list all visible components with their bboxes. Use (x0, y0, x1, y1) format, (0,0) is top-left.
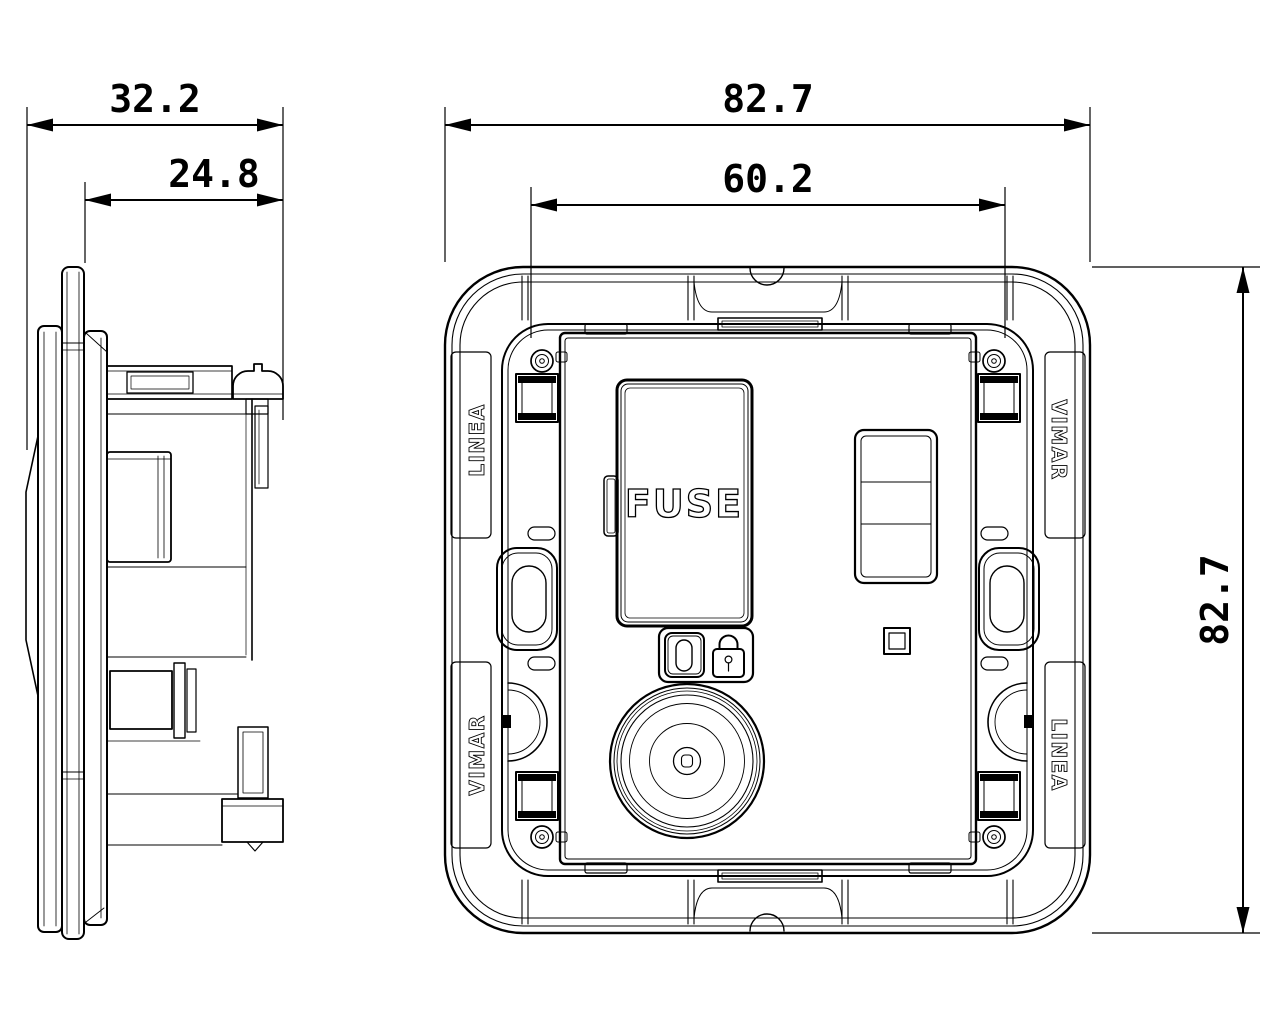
clip-window-top-right (978, 374, 1020, 422)
lock-plate (659, 628, 753, 682)
corner-screw-bottom-left (531, 826, 567, 848)
dim-value-32-2: 32.2 (109, 77, 201, 121)
side-knob-shaft (110, 671, 172, 729)
technical-drawing-page: 32.2 24.8 (0, 0, 1280, 1024)
side-view (26, 267, 283, 939)
drawing-svg: 32.2 24.8 (0, 0, 1280, 1024)
side-claw-block (222, 799, 283, 842)
dimension-front-height: 82.7 (1092, 267, 1260, 933)
engraved-vimar-bottom-left: VIMAR (465, 714, 489, 795)
key-slot (676, 640, 692, 671)
arrowhead-right (257, 194, 283, 207)
corner-screw-top-right (969, 350, 1005, 372)
side-cover-plate (38, 326, 62, 932)
engraved-linea-top-left: LINEA (465, 403, 489, 477)
arrowhead-down (1237, 907, 1250, 933)
frame-outer-edge (445, 267, 1090, 933)
padlock-icon (713, 636, 744, 678)
arrowhead-left (27, 119, 53, 132)
side-knob-bump (26, 436, 38, 696)
fuse-door: FUSE (604, 380, 752, 626)
corner-screw-bottom-right (969, 826, 1005, 848)
knob-center-slot (682, 755, 693, 767)
oval-screw-tab-right (979, 548, 1039, 650)
clip-window-bottom-left (516, 772, 558, 820)
oval-screw-tab-left (497, 548, 557, 650)
semicircle-cutout-right (988, 683, 1032, 761)
engraved-linea-bottom-right: LINEA (1047, 718, 1071, 792)
arrowhead-left (445, 119, 471, 132)
rocker-switch (855, 430, 937, 583)
dim-value-24-8: 24.8 (168, 152, 260, 196)
dimension-front-inner-width: 60.2 (531, 157, 1005, 338)
dim-value-82-7-width: 82.7 (722, 77, 814, 121)
dim-value-82-7-height: 82.7 (1193, 554, 1237, 646)
arrowhead-right (257, 119, 283, 132)
dimension-side-flush-depth: 24.8 (85, 152, 283, 263)
frame-bottom-notch (750, 914, 784, 931)
rotary-knob (610, 684, 764, 838)
engraved-vimar-top-right: VIMAR (1047, 399, 1071, 480)
engraved-fuse-label: FUSE (625, 482, 743, 526)
frame-window-edge (502, 324, 1033, 876)
clip-window-bottom-right (978, 772, 1020, 820)
side-back-plate (62, 267, 84, 939)
front-view: LINEA VIMAR VIMAR LINEA (445, 267, 1090, 933)
side-fuse-carrier (107, 452, 171, 562)
semicircle-cutout-left (503, 683, 547, 761)
corner-screw-top-left (531, 350, 567, 372)
arrowhead-right (979, 199, 1005, 212)
arrowhead-left (531, 199, 557, 212)
clip-window-top-left (516, 374, 558, 422)
side-clip-spring (255, 406, 268, 488)
arrowhead-right (1064, 119, 1090, 132)
side-frame-plate (84, 331, 107, 925)
arrowhead-left (85, 194, 111, 207)
side-mounting-clip (238, 727, 268, 798)
arrowhead-up (1237, 267, 1250, 293)
frame-band-dividers (522, 276, 1013, 924)
mounting-plate (560, 333, 976, 864)
dim-value-60-2: 60.2 (722, 157, 814, 201)
indicator-square (884, 628, 910, 654)
